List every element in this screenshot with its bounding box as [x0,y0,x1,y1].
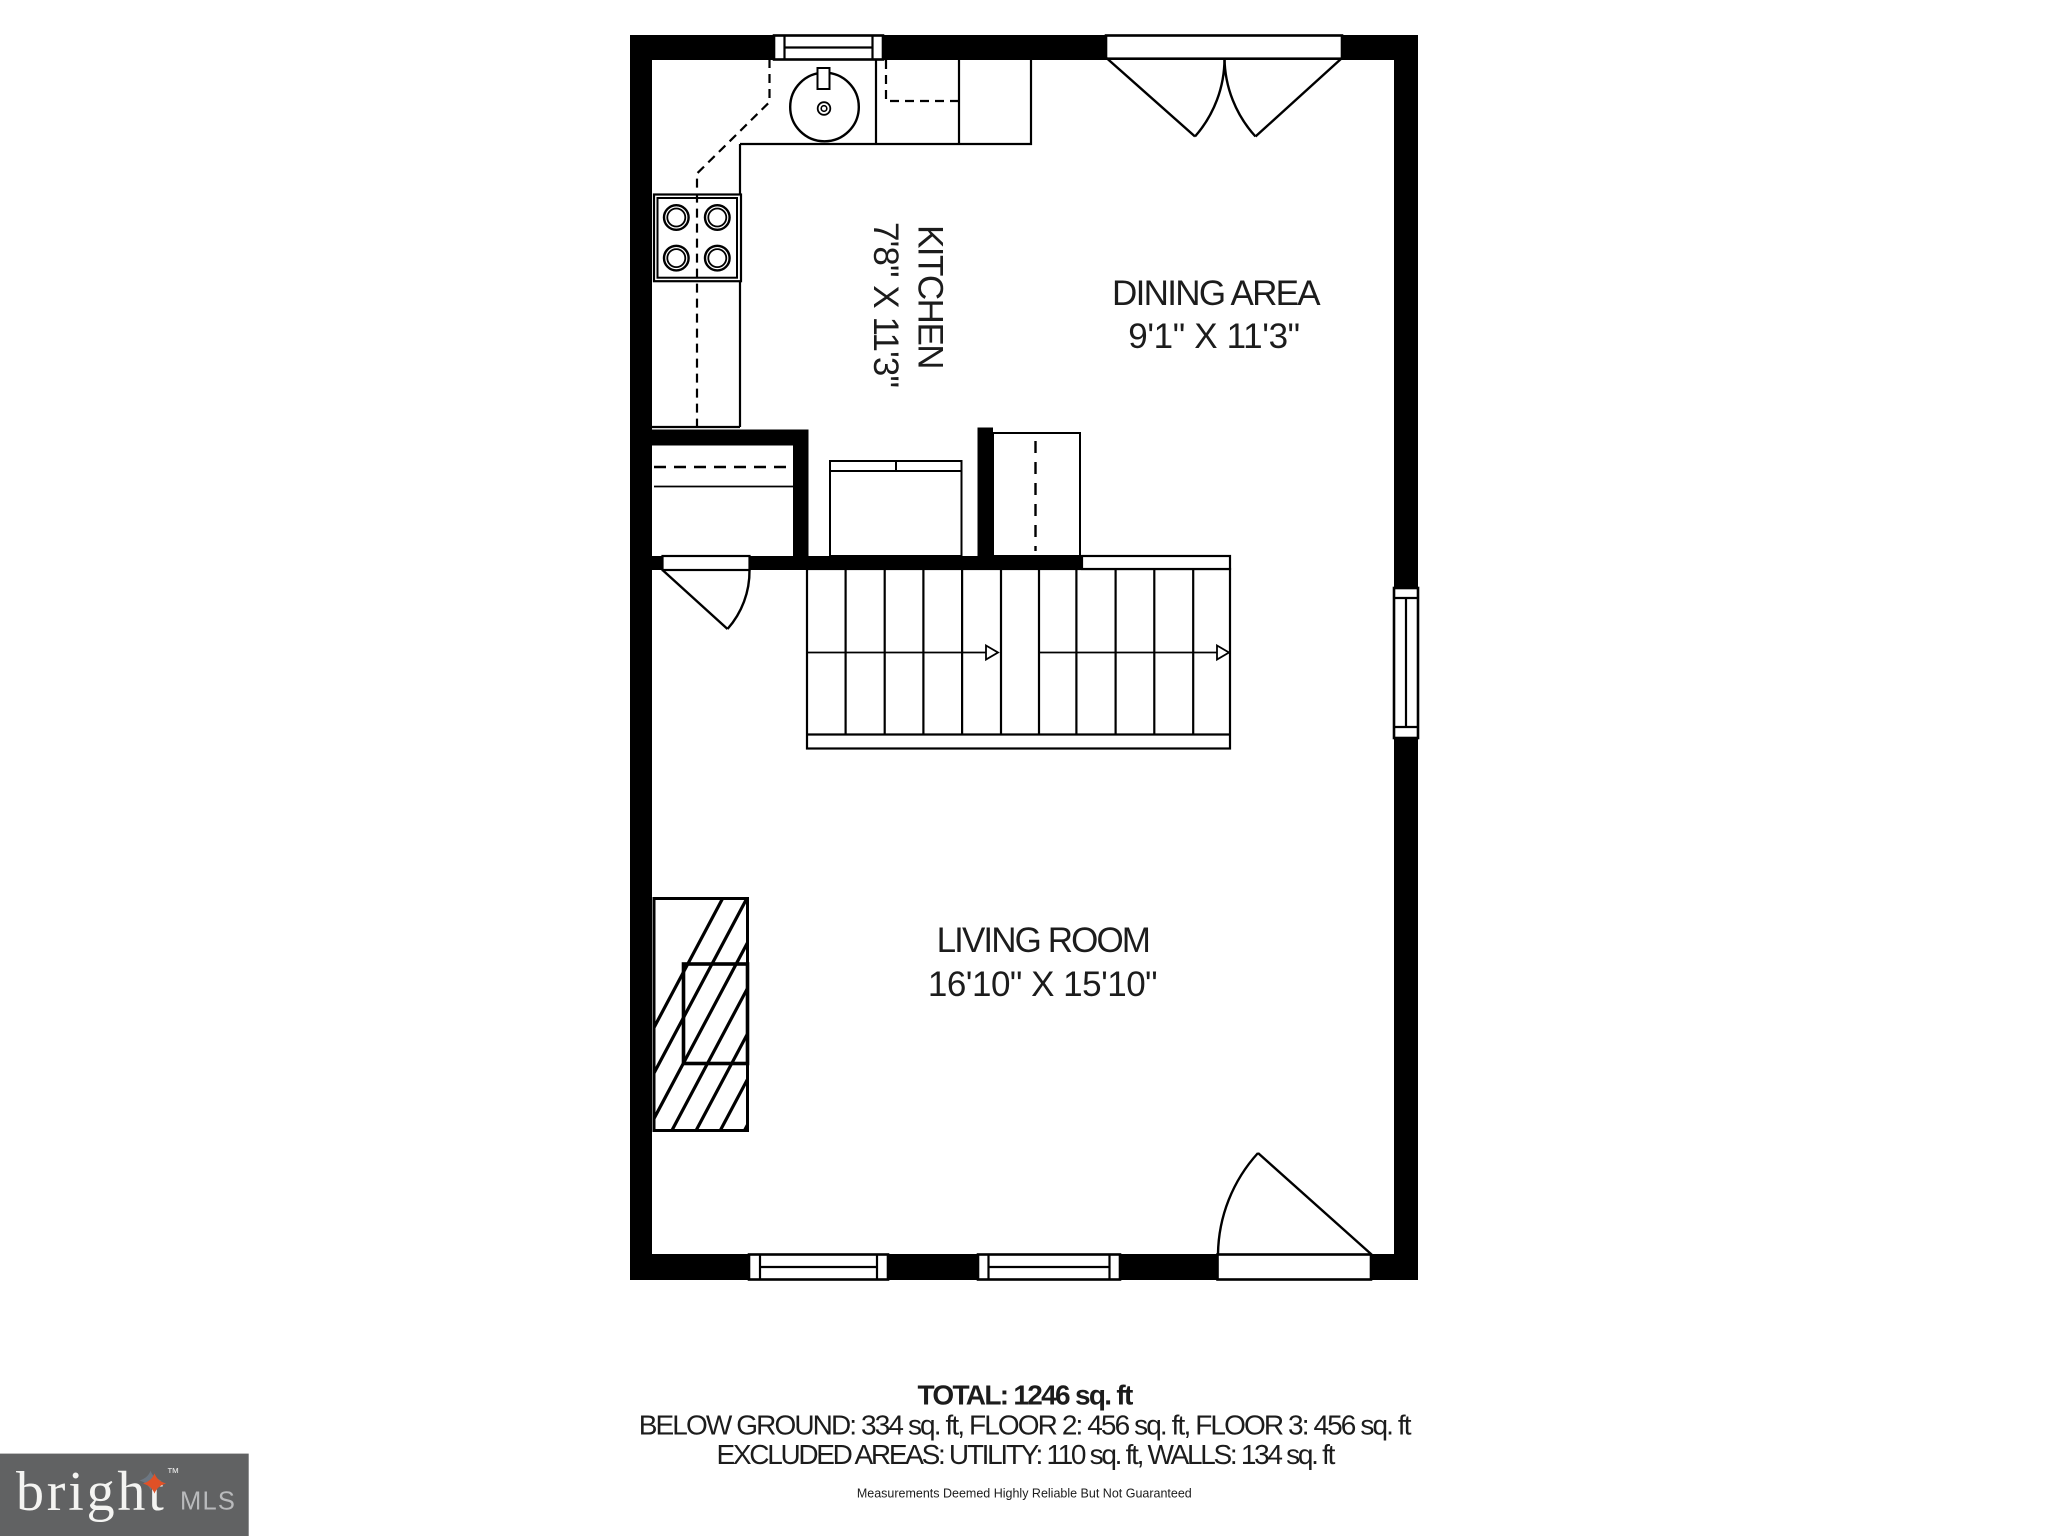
svg-text:MLS: MLS [180,1488,236,1516]
svg-text:™: ™ [167,1465,180,1480]
svg-text:7'8" X 11'3": 7'8" X 11'3" [866,222,905,387]
svg-text:TOTAL: 1246 sq. ft: TOTAL: 1246 sq. ft [918,1380,1134,1411]
svg-text:16'10" X 15'10": 16'10" X 15'10" [928,965,1157,1004]
svg-text:bright: bright [16,1461,167,1523]
svg-text:Measurements Deemed Highly Rel: Measurements Deemed Highly Reliable But … [857,1487,1192,1501]
svg-text:EXCLUDED AREAS: UTILITY: 110 s: EXCLUDED AREAS: UTILITY: 110 sq. ft, WAL… [717,1439,1336,1470]
svg-text:KITCHEN: KITCHEN [911,225,950,368]
svg-text:LIVING ROOM: LIVING ROOM [937,921,1149,960]
svg-text:9'1" X 11'3": 9'1" X 11'3" [1128,317,1300,356]
svg-text:BELOW GROUND: 334 sq. ft, FLOO: BELOW GROUND: 334 sq. ft, FLOOR 2: 456 s… [639,1410,1412,1441]
svg-text:DINING AREA: DINING AREA [1112,274,1321,313]
